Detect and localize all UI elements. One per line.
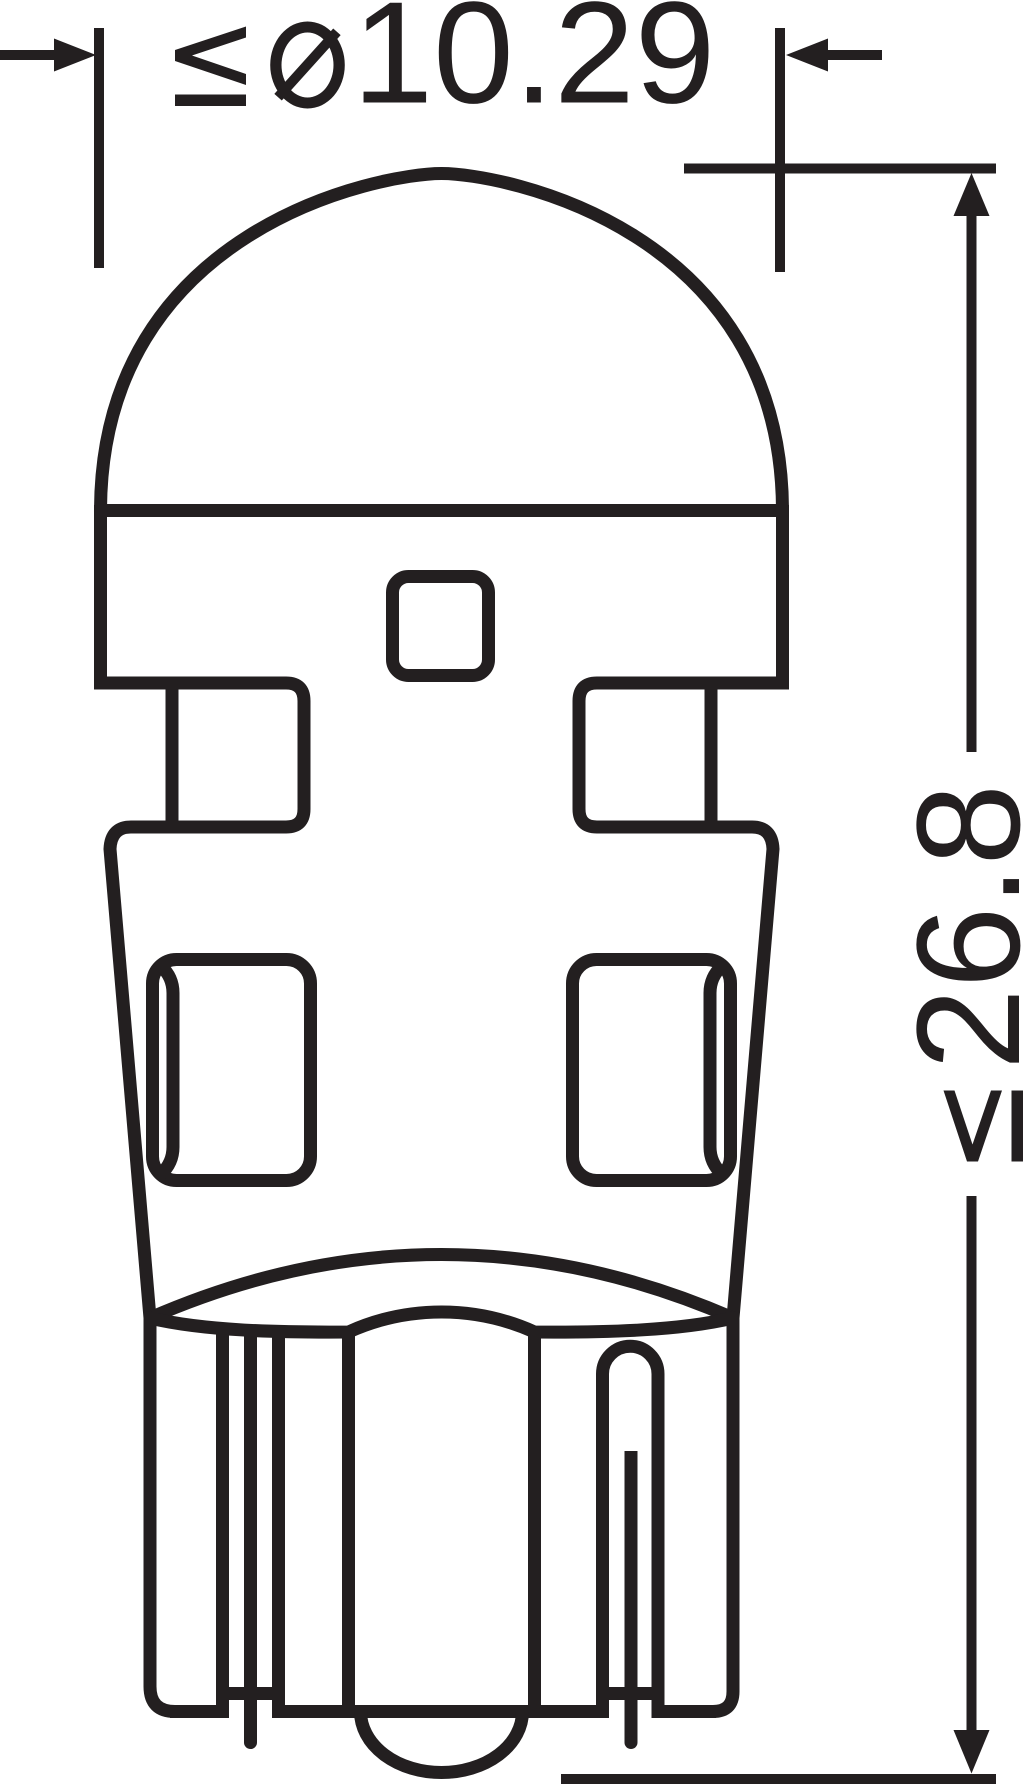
svg-text:26.8: 26.8 <box>887 784 1024 1070</box>
svg-text:10.29: 10.29 <box>353 0 716 134</box>
